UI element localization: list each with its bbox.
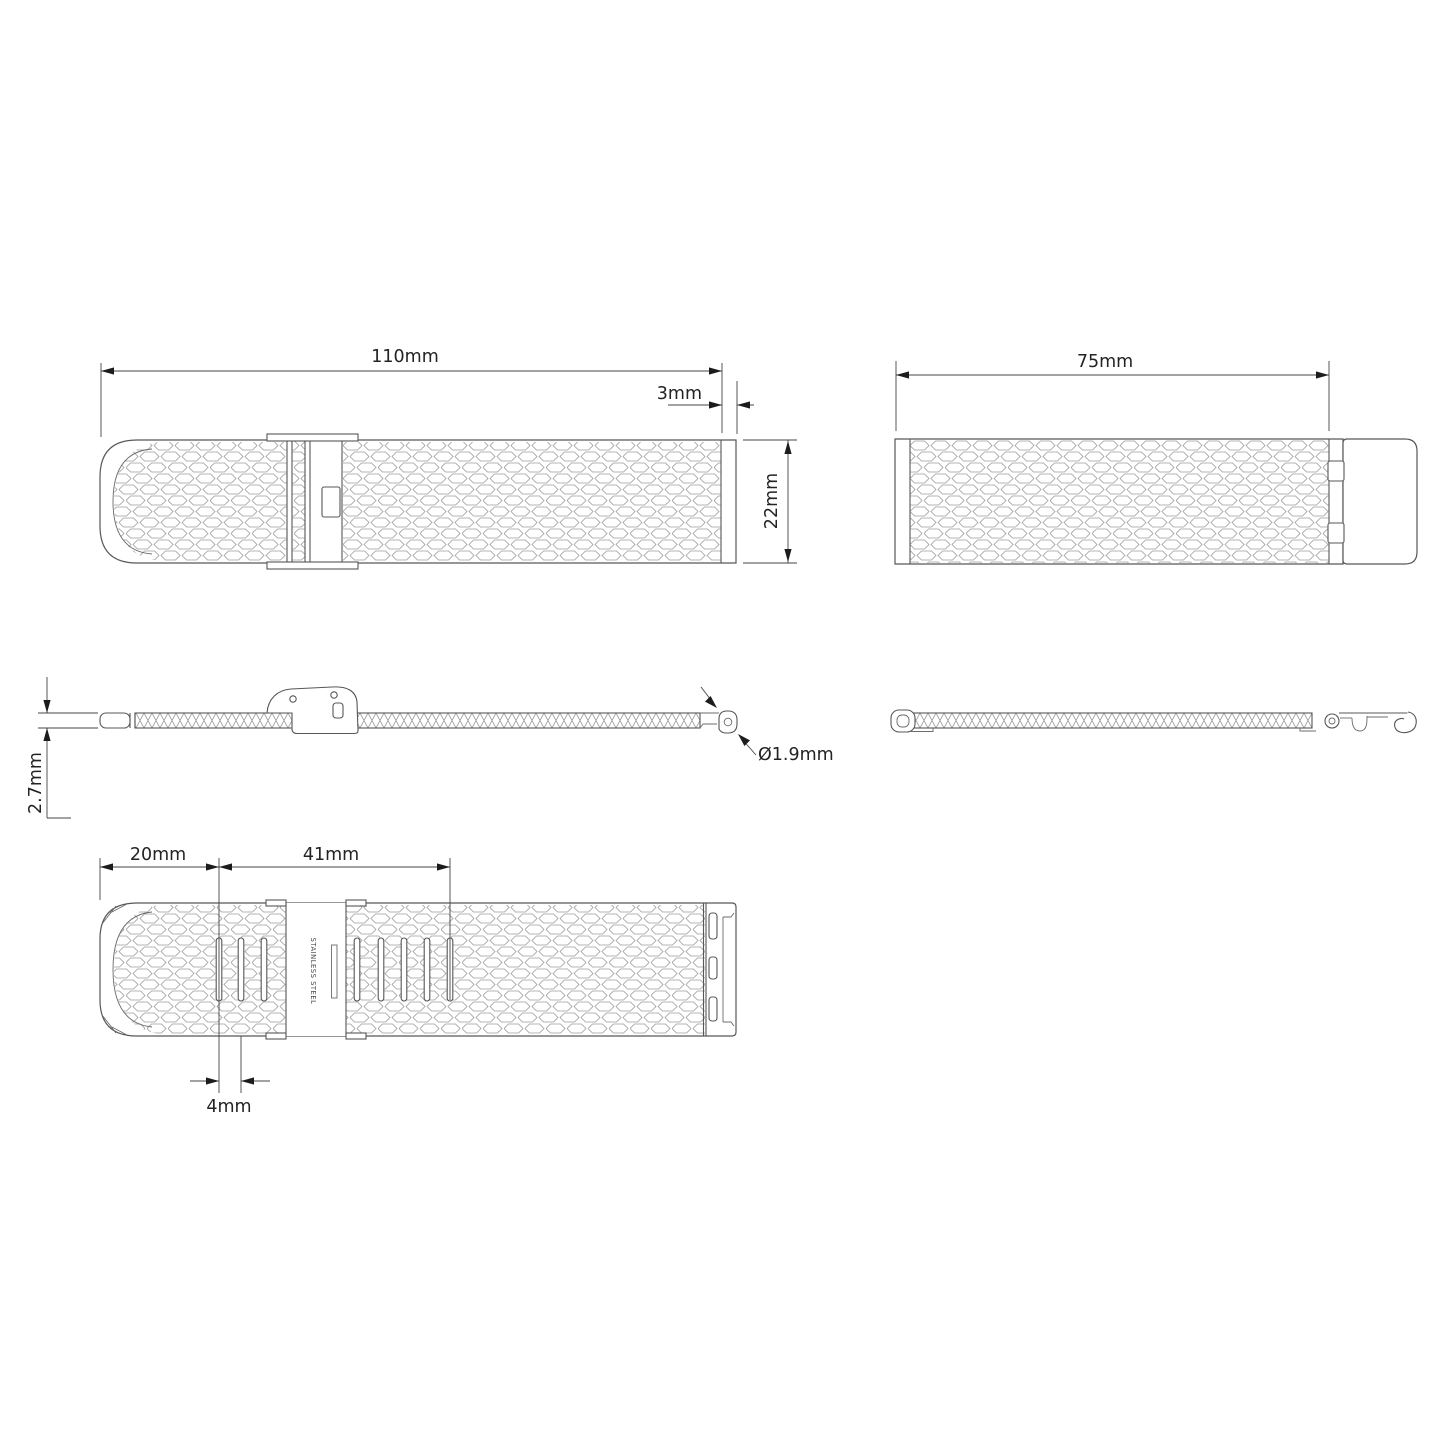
strap-profile [135,713,700,728]
pin-slot [709,957,717,979]
drawing-page: 110mm 3mm 22mm [0,0,1445,1445]
clasp-top-tab [267,434,358,441]
dim-label-22mm: 22mm [762,473,782,529]
clasp-bottom-tab [267,562,358,569]
view-side-band-buckle: 2.7mm Ø1.9mm [26,677,834,818]
pin-slot [709,997,717,1021]
view-back-band-buckle: STAINLESS STEEL 20mm [100,845,736,1117]
dimension-2-7mm: 2.7mm [26,677,98,818]
plate-tab [346,1033,366,1039]
dim-label-diameter: Ø1.9mm [758,745,834,765]
strap-profile [912,713,1312,728]
end-hook [1395,712,1417,733]
dim-label-41mm: 41mm [303,845,359,865]
dim-label-2-7mm: 2.7mm [26,752,46,814]
band-mesh [114,905,705,1034]
clasp-pivot-hole-left [290,696,296,702]
dimension-4mm: 4mm [190,1036,270,1117]
clasp-pivot-hole-right [331,692,337,698]
view-top-band-loop: 75mm [895,352,1417,564]
dim-label-3mm: 3mm [657,384,702,404]
dim-label-110mm: 110mm [371,347,439,367]
plate-tab [266,1033,286,1039]
dimension-75mm: 75mm [896,352,1329,431]
clasp-button-side [333,703,343,718]
dim-label-75mm: 75mm [1077,352,1133,372]
strap-end-cap-side [100,713,130,728]
dimension-110mm: 110mm [101,347,722,437]
hinge-pin [1325,714,1339,728]
pin-slot [709,913,717,939]
clasp-engraving-text: STAINLESS STEEL [309,938,317,1005]
band-mesh [910,440,1329,563]
end-cap-tab-top [1328,461,1344,481]
clasp-push-button [322,487,340,517]
strap-hook-end [1300,712,1416,733]
spring-bar-loop [719,711,737,733]
plate-tab [266,900,286,906]
j-hook [1352,716,1367,731]
dim-label-20mm: 20mm [130,845,186,865]
view-top-band-buckle: 110mm 3mm 22mm [100,347,797,569]
clasp-mesh-strip [292,441,305,562]
end-cap-tab-bottom [1328,523,1344,543]
view-side-band-loop [891,710,1416,733]
strap-tip-step [700,724,717,728]
dimension-3mm: 3mm [657,381,754,434]
end-cap [1343,439,1417,564]
plate-tab [346,900,366,906]
technical-drawing-canvas: 110mm 3mm 22mm [0,0,1445,1445]
dim-label-4mm: 4mm [206,1097,251,1117]
dimension-22mm: 22mm [743,440,797,563]
band-mesh [114,442,721,561]
